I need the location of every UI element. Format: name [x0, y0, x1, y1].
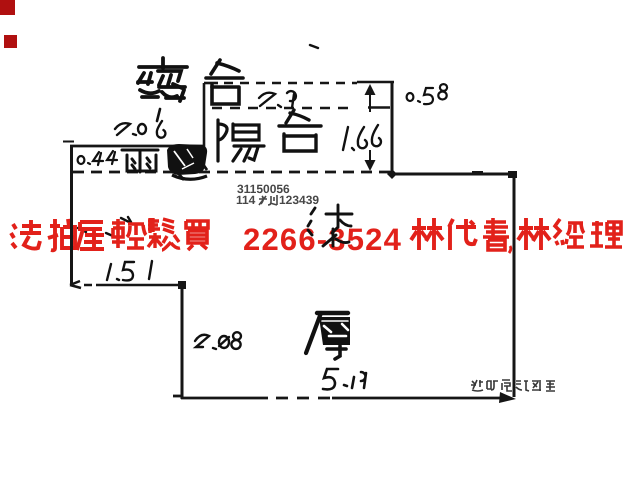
svg-text:123439: 123439 — [279, 193, 319, 207]
svg-text:2266-3524: 2266-3524 — [243, 222, 402, 257]
svg-text:114: 114 — [236, 193, 256, 207]
